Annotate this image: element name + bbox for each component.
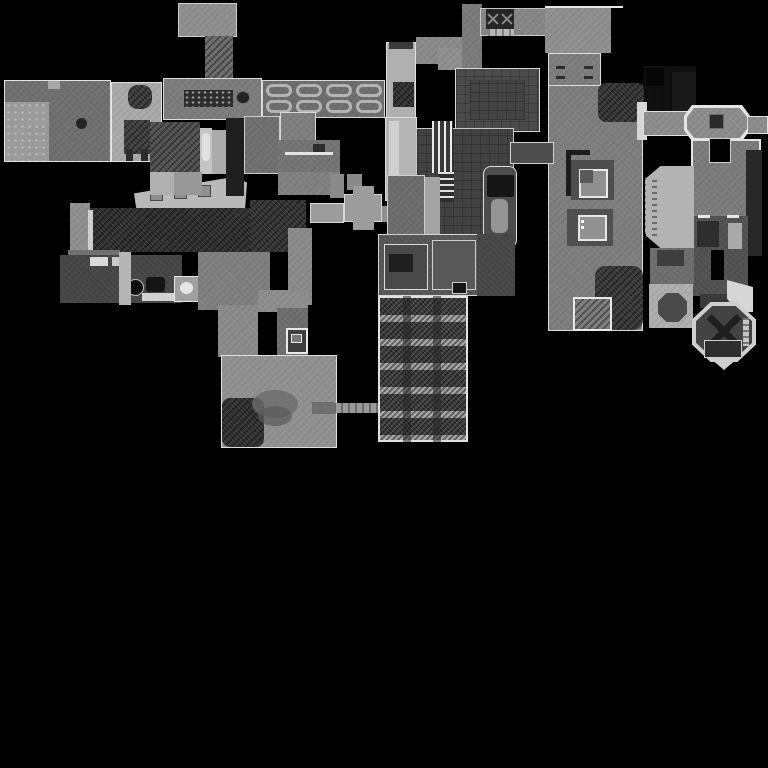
ne-rooms-col xyxy=(728,223,742,249)
drive-corridor xyxy=(205,36,233,80)
stair-rails xyxy=(432,121,453,173)
east-link xyxy=(510,142,554,164)
hedge-cell xyxy=(356,100,382,113)
nw-room-floor-light xyxy=(5,102,49,161)
stair-steps xyxy=(438,172,454,202)
n-upper-corridor xyxy=(462,4,482,70)
panel-room-inner xyxy=(470,80,525,120)
ne-rooms-door xyxy=(698,215,710,218)
landing-b xyxy=(174,172,202,195)
dark-house-wing xyxy=(646,68,664,86)
ne-path-west xyxy=(643,111,689,136)
west-hall-crates xyxy=(184,90,233,107)
parlor-rug xyxy=(90,257,108,266)
hall-path xyxy=(119,252,131,305)
se-bay xyxy=(704,340,742,358)
gazebo-pad xyxy=(658,293,687,322)
hedge-cell xyxy=(356,84,382,97)
south-corridor xyxy=(218,305,258,357)
hedge-cell xyxy=(296,84,322,97)
nw-room2-stub-a xyxy=(126,149,133,161)
east-yard-upper xyxy=(548,53,601,87)
parlor-piano xyxy=(146,277,165,292)
chapel xyxy=(344,194,382,222)
ne-court-notch xyxy=(709,138,731,163)
room-b xyxy=(212,130,226,174)
se-steps-light xyxy=(743,318,749,346)
pantry xyxy=(477,234,515,296)
atrium2-dot xyxy=(581,226,584,229)
patio-stain xyxy=(258,406,292,426)
map-canvas[interactable] xyxy=(0,0,768,768)
veranda-pad xyxy=(657,250,684,266)
music-piano xyxy=(487,175,514,197)
door-mark xyxy=(556,76,565,79)
chapel-stub xyxy=(330,174,344,198)
study-rooms xyxy=(387,175,425,235)
door-mark xyxy=(584,76,593,79)
ne-rooms-door xyxy=(727,215,739,218)
atrium1-notch xyxy=(580,170,593,183)
door-mark xyxy=(584,66,593,69)
hedge-cell xyxy=(266,84,292,97)
ne-drive-curb xyxy=(545,6,623,8)
hedge-cell xyxy=(326,84,352,97)
bend-hall-leg xyxy=(438,48,462,70)
room-e-rail xyxy=(285,152,333,155)
cellar-hatch xyxy=(452,282,467,294)
court-room xyxy=(150,122,200,174)
room-e-mark xyxy=(313,144,325,152)
ne-path-east xyxy=(747,116,768,134)
yard-rail-h xyxy=(566,150,590,155)
west-hall-table xyxy=(236,91,250,104)
nw-room-notch xyxy=(48,81,60,89)
nw-room2-tree xyxy=(128,85,152,109)
room-e xyxy=(278,140,340,174)
chapel-apse-n xyxy=(353,186,374,196)
patio-pad xyxy=(312,402,334,414)
door-mark xyxy=(556,66,565,69)
shed-inner xyxy=(291,334,302,343)
bath-tub xyxy=(202,133,210,161)
n-corridor-door xyxy=(389,42,413,49)
n-corridor xyxy=(386,42,416,120)
west-path xyxy=(88,210,93,255)
ne-rooms-slot xyxy=(711,250,724,280)
front-garden xyxy=(84,208,250,252)
landing-a xyxy=(150,172,174,195)
hedge-cell xyxy=(326,100,352,113)
n-corridor-obj xyxy=(393,82,414,107)
garden-post-col xyxy=(433,296,441,442)
ne-drive xyxy=(545,7,611,53)
statue xyxy=(180,282,193,294)
drive-hall-top xyxy=(178,3,237,37)
garden-post-col xyxy=(403,296,411,442)
veranda-rail xyxy=(652,180,657,240)
shaft xyxy=(226,118,244,196)
game-screenshot xyxy=(0,0,768,768)
grate-ledge xyxy=(488,29,514,36)
chapel-west-hall xyxy=(310,203,344,223)
nw-room2-stub-b xyxy=(141,149,148,161)
atrium2-dot xyxy=(581,220,584,223)
garden-shed-court xyxy=(573,297,612,331)
ne-hub-crate xyxy=(709,114,724,129)
ne-dark-strip xyxy=(746,150,762,256)
garden-rows xyxy=(378,296,468,442)
chapel-apse-s xyxy=(353,221,374,230)
ne-rooms-block xyxy=(697,221,719,247)
west-wing xyxy=(70,203,90,253)
nw-room-dark-dot xyxy=(76,118,87,129)
boardwalk xyxy=(334,403,378,413)
se-bay-tip xyxy=(710,358,738,370)
room-c xyxy=(244,116,280,174)
room-d xyxy=(280,112,316,142)
kitchen-counter xyxy=(389,254,413,272)
music-statue xyxy=(491,199,508,233)
